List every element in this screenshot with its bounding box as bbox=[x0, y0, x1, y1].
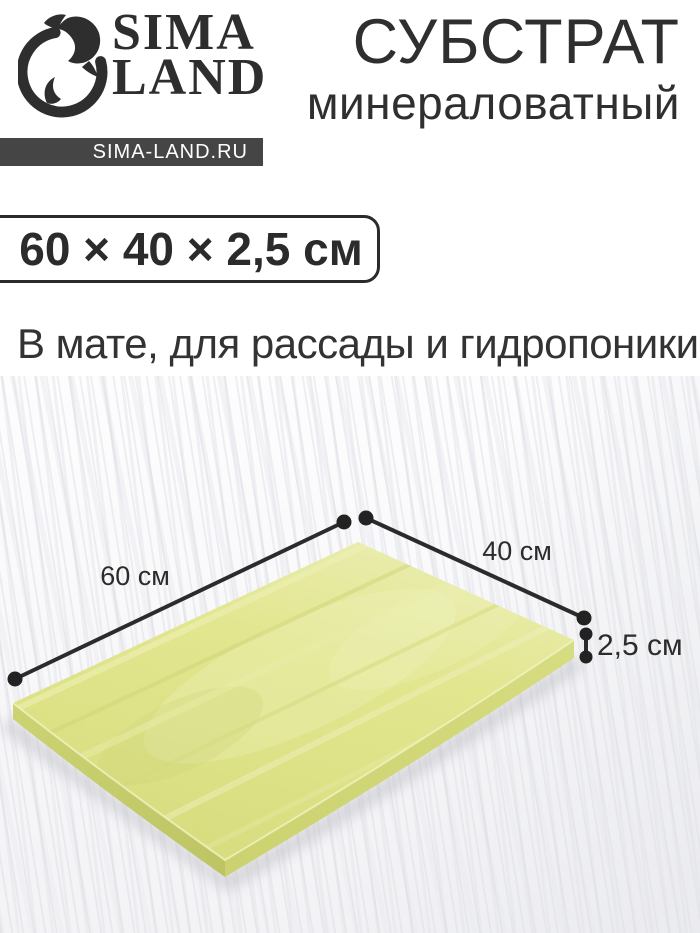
dimension-dot bbox=[580, 651, 593, 664]
dimension-label-width: 40 см bbox=[462, 536, 572, 566]
dolphin-wave bbox=[45, 77, 61, 104]
dolphin-head bbox=[57, 16, 100, 63]
dimension-label-thickness: 2,5 см bbox=[597, 630, 700, 662]
product-title: СУБСТРАТ bbox=[307, 8, 680, 76]
thickness-bracket bbox=[580, 628, 593, 664]
brand-line-2: LAND bbox=[112, 55, 267, 100]
dimension-dot bbox=[359, 511, 374, 526]
dimension-dot bbox=[577, 611, 592, 626]
dimension-dot bbox=[580, 628, 593, 641]
dolphin-logo-icon bbox=[18, 14, 110, 118]
product-card: SIMA LAND SIMA-LAND.RU СУБСТРАТ минерало… bbox=[0, 0, 700, 933]
product-subtitle: минераловатный bbox=[307, 78, 680, 128]
dimension-dot bbox=[8, 672, 23, 687]
dimension-dot bbox=[337, 515, 352, 530]
size-label: 60 × 40 × 2,5 см bbox=[0, 222, 363, 276]
brand-wordmark: SIMA LAND bbox=[112, 10, 267, 100]
dimension-label-length: 60 см bbox=[80, 561, 190, 591]
title-block: СУБСТРАТ минераловатный bbox=[307, 8, 680, 128]
size-box: 60 × 40 × 2,5 см bbox=[0, 215, 380, 283]
site-badge: SIMA-LAND.RU bbox=[0, 138, 263, 166]
mat-image bbox=[0, 376, 700, 933]
product-photo: 60 см 40 см 2,5 см bbox=[0, 376, 700, 933]
product-description: В мате, для рассады и гидропоники bbox=[17, 320, 699, 368]
